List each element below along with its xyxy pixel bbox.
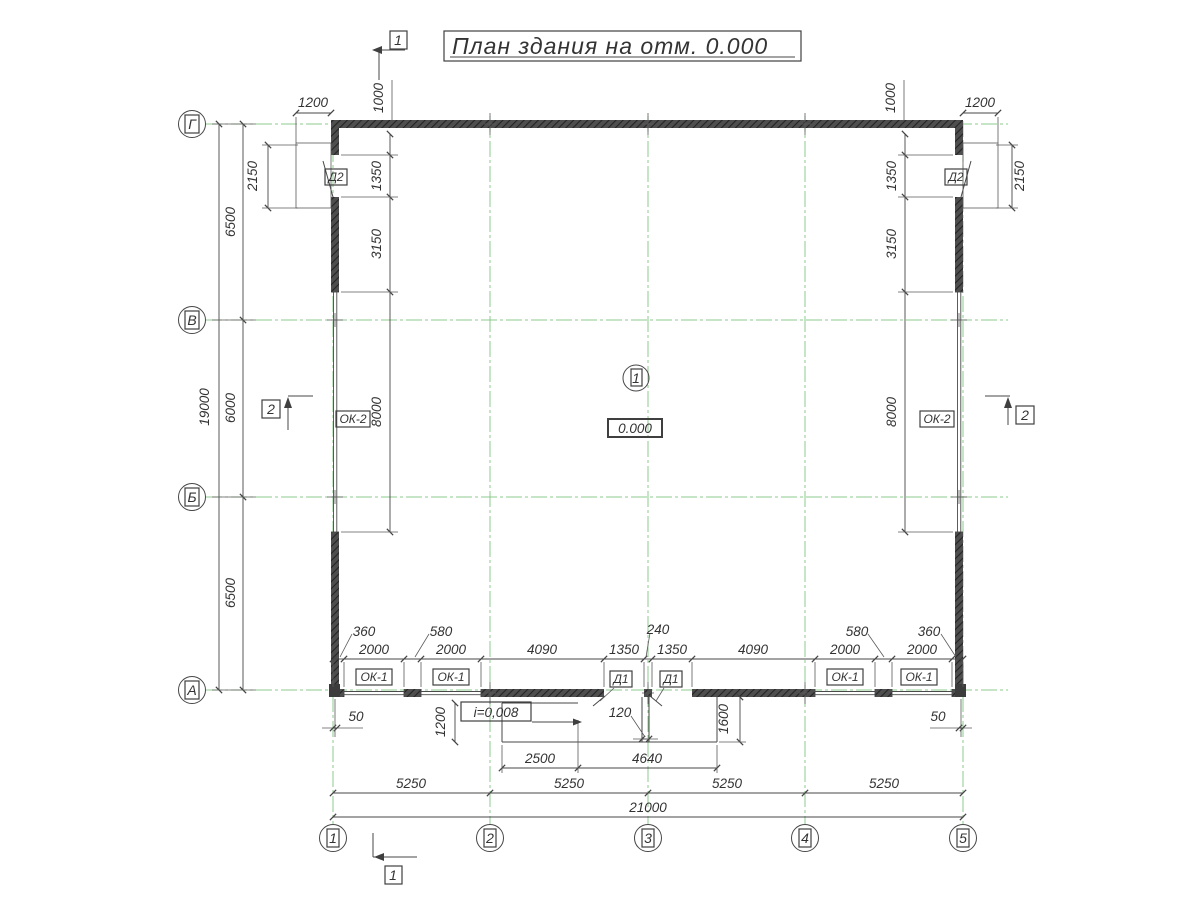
room-number: 1 xyxy=(632,370,640,386)
dim-label: 6000 xyxy=(223,392,238,423)
dim-label: 50 xyxy=(930,709,946,724)
axis-label-col: 5 xyxy=(959,830,967,846)
dim-label: 5250 xyxy=(869,776,900,791)
dim-label: 1200 xyxy=(965,95,996,110)
dim-label: 120 xyxy=(609,705,632,720)
slope-direction-arrow xyxy=(573,719,582,726)
column-marks xyxy=(327,113,967,704)
dim-total-height: 19000 xyxy=(197,388,212,426)
dim-label: 360 xyxy=(353,624,376,639)
dim-total-width: 21000 xyxy=(628,800,667,815)
axis-label-row: В xyxy=(187,312,196,328)
section-mark-1-bottom: 1 xyxy=(373,833,417,884)
section-mark-1-top: 1 xyxy=(372,31,407,80)
landing-left xyxy=(296,143,331,208)
section-arrow xyxy=(372,46,382,54)
door-tag-d2-left: Д2 xyxy=(326,170,343,184)
dim-label: 5250 xyxy=(396,776,427,791)
dim-label: 2500 xyxy=(524,751,556,766)
door-tag-d2-right: Д2 xyxy=(946,170,963,184)
window-tag-ok2-left: ОК-2 xyxy=(339,412,366,426)
window-tag-ok2-right: ОК-2 xyxy=(923,412,950,426)
dim-label: 1350 xyxy=(884,160,899,191)
door-tag-d1-left: Д1 xyxy=(611,672,628,686)
floor-plan-drawing: 2000 2000 4090 1350 1350 4090 2000 2000 … xyxy=(0,0,1200,900)
dim-label: 6500 xyxy=(223,206,238,237)
dim-label: 2000 xyxy=(906,642,938,657)
dim-label: 1350 xyxy=(657,642,688,657)
dim-label: 5250 xyxy=(712,776,743,791)
axis-label-row: А xyxy=(186,682,196,698)
dim-label: 360 xyxy=(918,624,941,639)
dim-label: 8000 xyxy=(884,396,899,427)
dim-label: 2000 xyxy=(358,642,390,657)
dim-label: 2150 xyxy=(1012,160,1027,192)
section-arrow xyxy=(374,853,384,861)
window-tag-ok1: ОК-1 xyxy=(831,670,858,684)
axis-label-col: 3 xyxy=(644,830,652,846)
section-number: 1 xyxy=(389,867,397,883)
dim-label: 1000 xyxy=(883,82,898,113)
dim-label: 1600 xyxy=(716,703,731,734)
dim-label: 4090 xyxy=(738,642,769,657)
dimension-labels: 2000 2000 4090 1350 1350 4090 2000 2000 … xyxy=(197,82,1027,815)
axis-label-col: 4 xyxy=(801,830,809,846)
dim-label: 580 xyxy=(846,624,869,639)
axis-centerlines xyxy=(206,116,1008,825)
dim-label: 5250 xyxy=(554,776,585,791)
drawing-title: План здания на отм. 0.000 xyxy=(452,33,768,59)
dim-label: 3150 xyxy=(369,228,384,259)
dim-label: 1000 xyxy=(371,82,386,113)
dim-label: 6500 xyxy=(223,577,238,608)
window-tag-ok1: ОК-1 xyxy=(905,670,932,684)
elevation-value: 0.000 xyxy=(618,421,652,436)
dim-label: 2150 xyxy=(245,160,260,192)
dim-label: 580 xyxy=(430,624,453,639)
drawing-canvas: 2000 2000 4090 1350 1350 4090 2000 2000 … xyxy=(0,0,1200,900)
door-tag-d1-right: Д1 xyxy=(661,672,678,686)
section-mark-2-left: 2 xyxy=(262,396,313,430)
slope-value: i=0,008 xyxy=(474,705,519,720)
window-tag-ok1: ОК-1 xyxy=(437,670,464,684)
section-number: 2 xyxy=(266,401,275,417)
axis-label-row: Г xyxy=(188,116,197,132)
section-number: 1 xyxy=(394,32,402,48)
dim-label: 2000 xyxy=(435,642,467,657)
dim-label: 1200 xyxy=(433,706,448,737)
section-arrow xyxy=(284,397,292,408)
dim-label: 2000 xyxy=(829,642,861,657)
axis-label-row: Б xyxy=(187,489,196,505)
dim-label: 1200 xyxy=(298,95,329,110)
section-number: 2 xyxy=(1020,407,1029,423)
dim-label: 50 xyxy=(348,709,364,724)
landing-right xyxy=(963,143,998,208)
drawing-title-block: План здания на отм. 0.000 xyxy=(444,31,801,61)
dim-label: 8000 xyxy=(369,396,384,427)
axis-label-col: 2 xyxy=(485,830,494,846)
dim-label: 240 xyxy=(646,622,670,637)
dim-label: 4640 xyxy=(632,751,663,766)
dim-label: 4090 xyxy=(527,642,558,657)
window-tag-ok1: ОК-1 xyxy=(360,670,387,684)
dim-label: 1350 xyxy=(369,160,384,191)
section-mark-2-right: 2 xyxy=(985,396,1034,425)
axis-label-col: 1 xyxy=(329,830,337,846)
dim-label: 3150 xyxy=(884,228,899,259)
section-arrow xyxy=(1004,397,1012,408)
dim-label: 1350 xyxy=(609,642,640,657)
axis-bubbles: Г В Б А 1 2 3 4 5 xyxy=(179,111,977,852)
